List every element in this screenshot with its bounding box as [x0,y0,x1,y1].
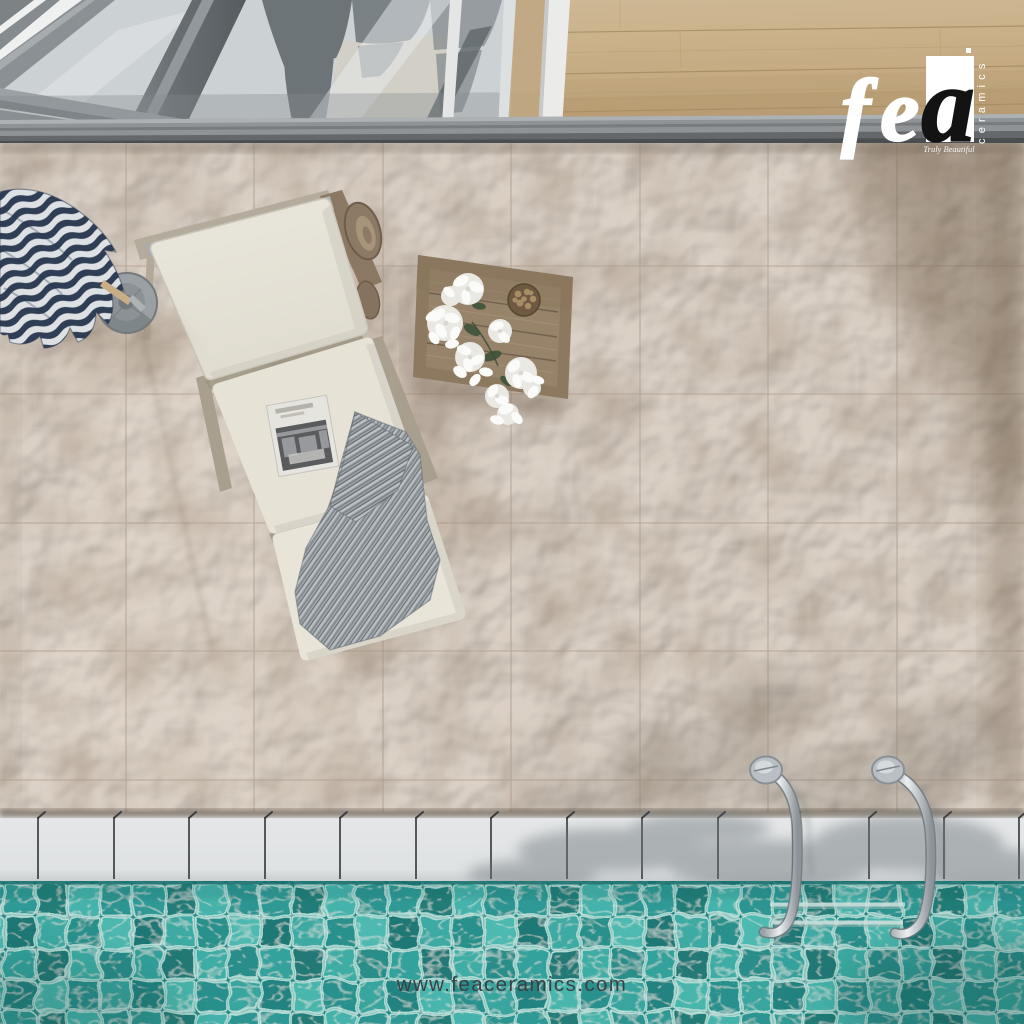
svg-text:fe: fe [841,63,929,160]
svg-text:www.feaceramics.com: www.feaceramics.com [396,973,628,996]
svg-text:ceramics: ceramics [976,58,988,144]
svg-text:Truly Beautiful: Truly Beautiful [923,144,975,154]
